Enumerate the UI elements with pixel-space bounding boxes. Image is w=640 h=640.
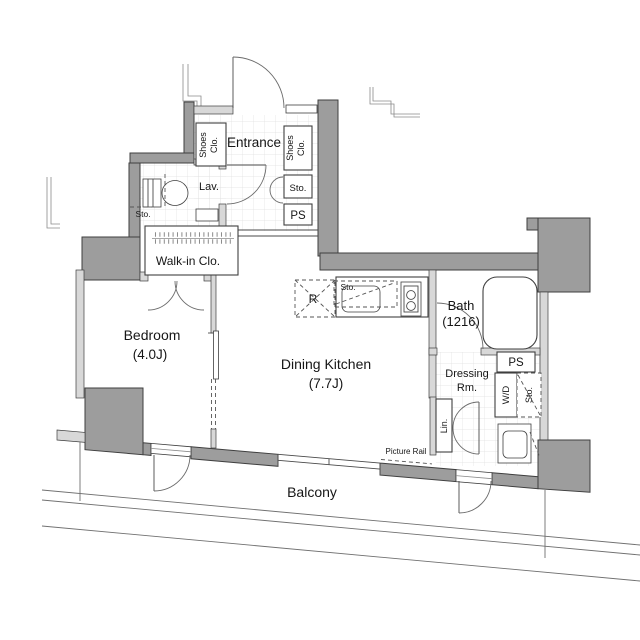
wall-bedroom-left xyxy=(76,270,84,398)
shoes-closet-left-label-line1: Shoes xyxy=(198,132,208,158)
bathtub-icon xyxy=(483,277,537,349)
column-block-lower-left xyxy=(85,388,143,455)
bath-size-label: (1216) xyxy=(442,314,480,329)
building-edge-step-outer xyxy=(47,177,60,228)
entrance-pipe-shaft-label: PS xyxy=(290,210,306,222)
wall-step-top-right xyxy=(527,218,538,230)
railing-line-3 xyxy=(42,526,640,581)
railing-line-2 xyxy=(42,500,640,555)
balcony-label: Balcony xyxy=(287,484,337,500)
dressing-storage-label: Sto. xyxy=(524,387,534,403)
bedroom-label: Bedroom xyxy=(124,327,181,343)
corridor-outline-left-inner xyxy=(188,64,201,107)
wall-north-band xyxy=(320,253,538,270)
entrance-storage-label: Sto. xyxy=(290,183,307,194)
hanger-rail-row-1 xyxy=(152,231,234,238)
dk-balcony-door-arc xyxy=(459,481,491,513)
washer-dryer-label: W/D xyxy=(501,386,512,405)
picture-rail-label: Picture Rail xyxy=(386,447,427,456)
lavatory-label: Lav. xyxy=(199,181,219,193)
shoes-closet-left-label-line2: Clo. xyxy=(209,137,219,153)
corridor-outline-right-outer xyxy=(370,87,420,117)
wall-bedroom-dk-lower-stub xyxy=(211,429,216,448)
entrance-label: Entrance xyxy=(227,135,281,150)
walkin-double-door-arc-right xyxy=(175,281,204,310)
sliding-door-panel xyxy=(214,331,219,379)
bedroom-balcony-door-arc xyxy=(154,455,190,491)
refrigerator-label: R xyxy=(309,292,318,306)
wall-dk-bath-dressing xyxy=(429,270,436,398)
column-block-upper-left xyxy=(82,237,140,280)
picture-rail-dashed-line xyxy=(381,460,432,464)
shoes-closet-right-label-line2: Clo. xyxy=(296,140,306,156)
dining-kitchen-size-label: (7.7J) xyxy=(309,376,344,391)
lavatory-storage-label: Sto. xyxy=(135,209,150,219)
dining-kitchen-label: Dining Kitchen xyxy=(281,356,371,372)
wall-entrance-right-band xyxy=(318,100,338,256)
corridor-outline-right-inner xyxy=(373,87,420,114)
hanger-rail-row-2 xyxy=(152,239,234,246)
toilet-bowl-icon xyxy=(162,181,188,206)
balcony-wall-segment-d xyxy=(492,473,538,489)
column-block-top-right xyxy=(538,218,590,292)
balcony-wall-segment-a xyxy=(143,443,151,456)
bedroom-size-label: (4.0J) xyxy=(133,347,168,362)
entrance-door-swing-arc xyxy=(233,57,284,108)
shoes-closet-right-label-line1: Shoes xyxy=(285,135,295,161)
wall-lavatory-left xyxy=(129,163,140,237)
toilet-tank-icon xyxy=(143,179,161,207)
wall-bath-bottom-left-stub xyxy=(429,348,437,355)
vanity-basin-bowl xyxy=(503,431,527,458)
building-edge-step-inner xyxy=(51,177,60,224)
wall-dressing-left-lower xyxy=(430,397,436,455)
dressing-room-label-line1: Dressing xyxy=(445,368,488,380)
linen-closet-label: Lin. xyxy=(439,419,449,434)
entrance-door-sidelite xyxy=(286,105,317,113)
dressing-room-label-line2: Rm. xyxy=(457,382,477,394)
wall-bedroom-dk-upper xyxy=(211,275,216,333)
walkin-double-door-arc-left xyxy=(148,281,177,310)
floor-plan-drawing: Entrance Shoes Clo. Shoes Clo. Lav. Sto.… xyxy=(0,0,640,640)
railing-line-1 xyxy=(42,490,640,545)
wall-step-lower-left xyxy=(57,430,85,442)
wall-lavatory-top xyxy=(130,153,194,163)
lavatory-counter xyxy=(196,209,218,221)
balcony-wall-segment-b xyxy=(191,447,278,467)
wall-entrance-door-stub xyxy=(194,106,233,114)
wall-entrance-left xyxy=(184,102,194,160)
walkin-closet-label: Walk-in Clo. xyxy=(156,254,220,268)
bath-pipe-shaft-label: PS xyxy=(508,357,524,369)
column-block-bottom-right xyxy=(538,440,590,492)
wall-right-exterior xyxy=(540,292,548,440)
bath-label: Bath xyxy=(448,298,475,313)
floor-plan-page: Entrance Shoes Clo. Shoes Clo. Lav. Sto.… xyxy=(0,0,640,640)
kitchen-storage-label: Sto. xyxy=(340,282,355,292)
